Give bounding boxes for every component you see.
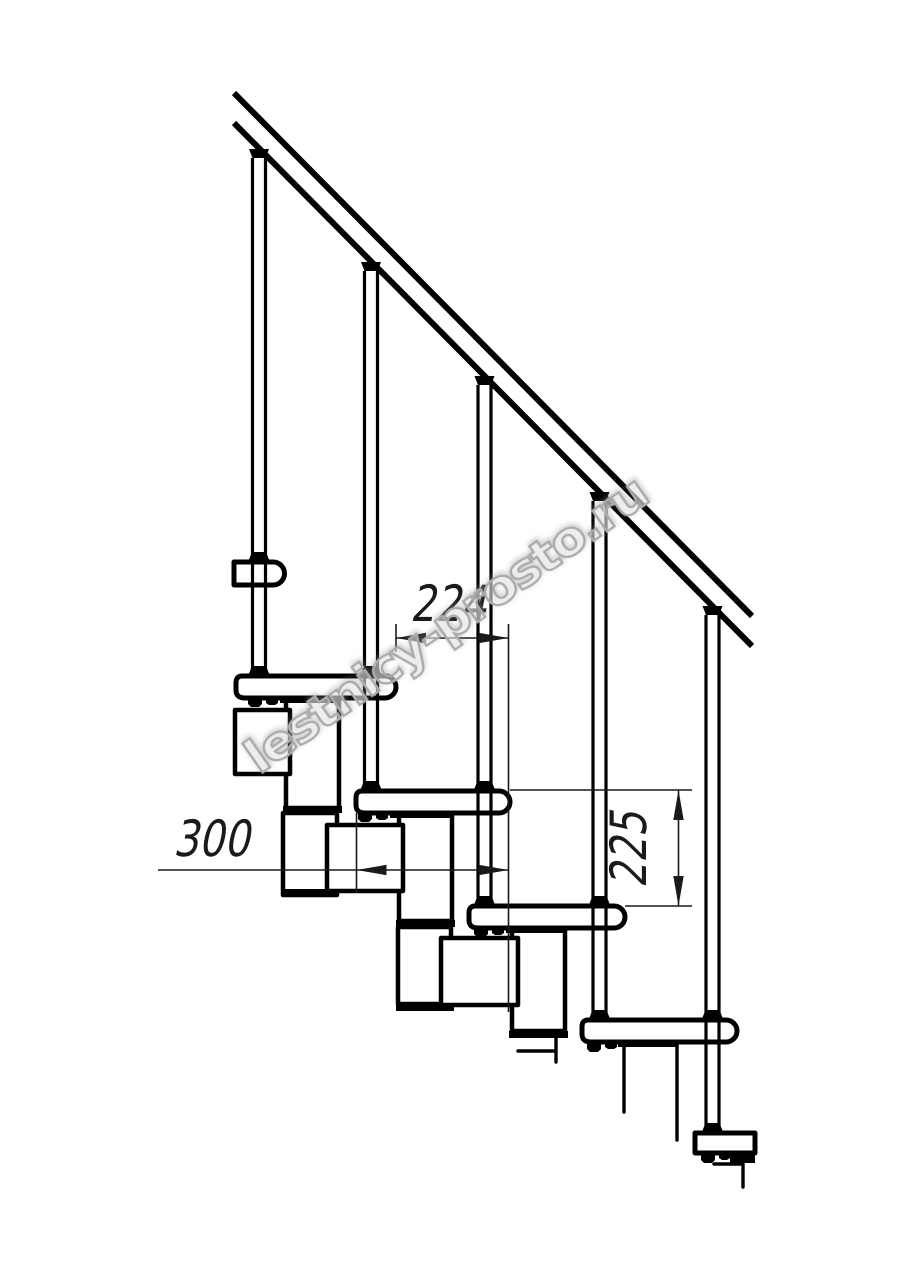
bracket-under-tread-5 <box>701 1153 755 1187</box>
baluster-1 <box>248 149 270 676</box>
tread-landing-edge <box>234 562 285 585</box>
baluster-5 <box>702 606 724 1133</box>
drawing-cut-line <box>518 1038 556 1062</box>
arrow-right-icon <box>479 865 509 875</box>
module-box <box>441 938 518 1005</box>
module-joint-bar <box>509 1031 568 1038</box>
dimension-value: 300 <box>170 809 259 868</box>
handrail-top-line <box>234 93 752 616</box>
staircase-drawing: 224 300 225 lestnicy-prosto.ru <box>0 0 914 1280</box>
arrow-up-icon <box>673 790 683 820</box>
drawing-cut-line <box>714 1164 743 1187</box>
staircase-drawing-page: 224 300 225 lestnicy-prosto.ru <box>0 0 914 1280</box>
module-box <box>327 825 403 891</box>
baluster-4 <box>589 492 611 1020</box>
tread-4 <box>582 1020 737 1042</box>
module-tube <box>399 813 452 921</box>
dimension-value: 225 <box>599 802 658 891</box>
arrow-down-icon <box>673 876 683 906</box>
dimension-riser-height: 225 <box>510 790 692 906</box>
arrow-right-icon <box>479 633 509 643</box>
tread-2 <box>356 791 510 813</box>
tread-3 <box>469 906 625 928</box>
tread-5 <box>695 1133 755 1153</box>
